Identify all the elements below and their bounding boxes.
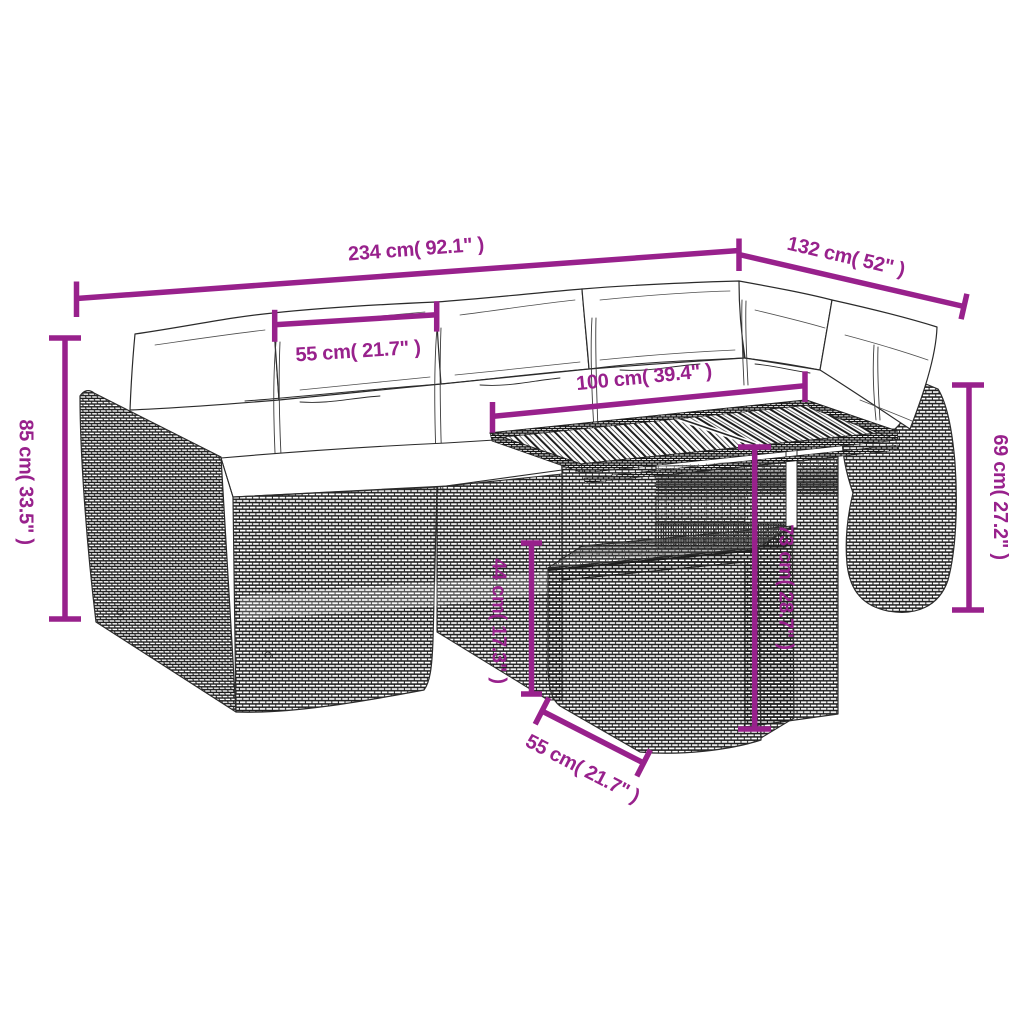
- svg-text:73 cm( 28.7" ): 73 cm( 28.7" ): [775, 524, 797, 649]
- svg-text:69 cm( 27.2" ): 69 cm( 27.2" ): [989, 434, 1011, 559]
- svg-text:44 cm( 17.3" ): 44 cm( 17.3" ): [488, 558, 510, 683]
- svg-text:85 cm( 33.5" ): 85 cm( 33.5" ): [15, 419, 37, 544]
